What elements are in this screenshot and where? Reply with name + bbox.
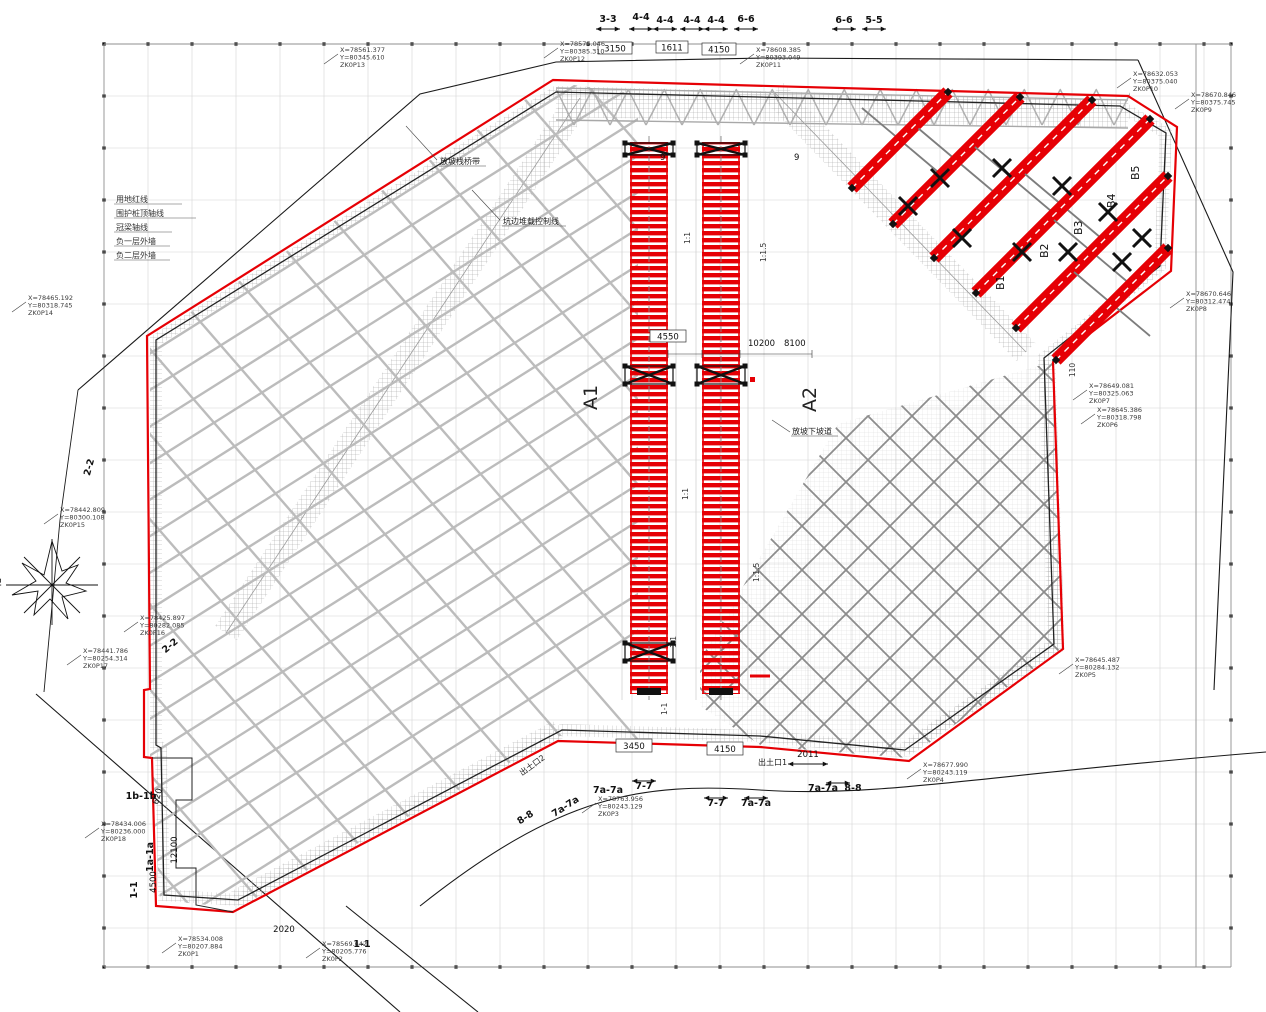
area-label-b1: B1 <box>994 275 1007 290</box>
coordinate-callout: X=78763.956Y=80243.129ZK0P3 <box>582 795 643 818</box>
section-marker: 4-4 <box>707 15 725 26</box>
callout-text: ZK0P5 <box>1075 671 1096 679</box>
legend-line: 冠梁轴线 <box>116 222 148 232</box>
legend-line: 围护桩顶轴线 <box>116 208 164 218</box>
callout-text: ZK0P14 <box>28 309 53 317</box>
callout-text: ZK0P11 <box>756 61 781 69</box>
site-boundary-left <box>44 390 78 692</box>
coordinate-callout: X=78649.081Y=80325.063ZK0P7 <box>1073 382 1134 405</box>
callout-text: ZK0P1 <box>178 950 199 958</box>
compass-icon <box>6 539 98 625</box>
callout-text: ZK0P6 <box>1097 421 1118 429</box>
area-label-b5: B5 <box>1129 165 1142 180</box>
site-boundary-right <box>1138 60 1233 690</box>
dim-4150: 4150 <box>708 46 730 56</box>
section-marker: 4-4 <box>656 15 674 26</box>
coordinate-callout: X=78569.642Y=80205.776ZK0P2 <box>306 940 367 963</box>
callout-text: ZK0P15 <box>60 521 85 529</box>
callout-text: ZK0P10 <box>1133 85 1158 93</box>
band-edge <box>226 98 580 633</box>
dim-4550: 4550 <box>657 333 679 343</box>
section-marker: 7-7 <box>635 781 652 792</box>
coordinate-callout: X=78441.786Y=80254.314ZK0P17 <box>67 647 128 670</box>
callout-text: ZK0P9 <box>1191 106 1212 114</box>
dim-12100: 12100 <box>170 836 180 863</box>
area-label-a1: A1 <box>580 385 602 410</box>
section-marker: 1-1 <box>129 881 140 898</box>
area-label-a2: A2 <box>799 387 821 412</box>
slope-label: 1:1.5 <box>752 563 761 582</box>
section-marker: 6-6 <box>737 14 755 25</box>
section-marker: 7-7 <box>707 798 724 809</box>
section-marker: 6-6 <box>835 15 853 26</box>
grid-bubble: 9 <box>794 153 799 163</box>
callout-text: ZK0P4 <box>923 776 944 784</box>
section-marker: 2-2 <box>82 458 97 477</box>
north-label: 北 <box>0 578 3 589</box>
coordinate-callout: X=78434.006Y=80236.000ZK0P18 <box>85 820 146 843</box>
callout-text: ZK0P16 <box>140 629 165 637</box>
drawing-sheet: B1 B2 B3 B4 B5 4550 10200 <box>0 0 1266 1012</box>
area-label-b4: B4 <box>1105 193 1118 208</box>
slope-label: 1:1 <box>681 488 690 500</box>
legend-line: 用地红线 <box>116 194 148 204</box>
slope-label: 1-1 <box>660 703 669 715</box>
coordinate-callout: X=78670.846Y=80375.745ZK0P9 <box>1175 91 1236 114</box>
bridge-note: 放坡栈桥带 <box>440 156 480 166</box>
dim-10200: 10200 <box>748 339 775 349</box>
site-plan-drawing: B1 B2 B3 B4 B5 4550 10200 <box>0 0 1266 1012</box>
ramp-note: 放坡下坡道 <box>772 420 838 436</box>
dim-3150: 3150 <box>604 45 626 55</box>
slope-label: 1:1 <box>669 636 678 648</box>
coordinate-callout: X=78608.385Y=80393.049ZK0P11 <box>740 46 801 69</box>
callout-text: ZK0P2 <box>322 955 343 963</box>
section-marker: 2-2 <box>160 636 180 655</box>
section-marker: 5-5 <box>865 15 882 26</box>
section-marker: 8-8 <box>844 783 862 794</box>
red-marker-square <box>750 377 755 382</box>
legend-line: 负二层外墙 <box>116 250 156 260</box>
callout-text: ZK0P12 <box>560 55 585 63</box>
callout-text: ZK0P3 <box>598 810 619 818</box>
dim-4150: 4150 <box>714 745 736 755</box>
dim-1611: 1611 <box>661 44 683 54</box>
dim-2020: 2020 <box>273 925 295 935</box>
coordinate-callout: X=78442.809Y=80300.108ZK0P15 <box>44 506 105 529</box>
coordinate-callout: X=78670.646Y=80312.474ZK0P8 <box>1170 290 1231 313</box>
section-marker: 3-3 <box>599 14 616 25</box>
coordinate-callout: X=78632.053Y=80375.040ZK0P10 <box>1117 70 1178 93</box>
section-marker: 8-8 <box>515 808 536 827</box>
slope-label: 1:1 <box>683 232 692 244</box>
dim-3450: 3450 <box>623 742 645 752</box>
area-label-b2: B2 <box>1038 243 1051 258</box>
callout-text: ZK0P8 <box>1186 305 1207 313</box>
coordinate-callout: X=78645.386Y=80318.798ZK0P6 <box>1081 406 1142 429</box>
dim-110: 110 <box>1068 363 1077 378</box>
section-marker: 7a-7a <box>741 798 771 809</box>
legend-line: 负一层外墙 <box>116 236 156 246</box>
dim-2011: 2011 <box>797 750 819 760</box>
section-marker: 7a-7a <box>550 794 581 820</box>
callout-text: ZK0P13 <box>340 61 365 69</box>
callout-text: ZK0P7 <box>1089 397 1110 405</box>
north-compass: 北 <box>0 539 98 625</box>
section-marker: 1b-1b <box>126 791 157 802</box>
callout-text: ZK0P17 <box>83 662 108 670</box>
grid-bubble: 9 <box>660 153 665 163</box>
section-marker: 4-4 <box>632 12 650 23</box>
dim-8100: 8100 <box>784 339 806 349</box>
coordinate-callout: X=78575.046Y=80385.310ZK0P12 <box>544 40 605 63</box>
dim-4500: 4500 <box>149 871 159 893</box>
opening-label-1: 出土口1 <box>758 757 787 767</box>
slope-label: 1:1.5 <box>759 243 768 262</box>
coordinate-callout: X=78677.990Y=80243.119ZK0P4 <box>907 761 968 784</box>
surcharge-note: 坑边堆载控制线 <box>503 216 559 226</box>
a-strut-columns <box>622 136 770 700</box>
coordinate-callout: X=78465.192Y=80318.745ZK0P14 <box>12 294 73 317</box>
coordinate-callout: X=78645.487Y=80284.132ZK0P5 <box>1059 656 1120 679</box>
coordinate-callout: X=78534.008Y=80207.884ZK0P1 <box>162 935 223 958</box>
area-label-b3: B3 <box>1072 220 1085 235</box>
ramp-label: 放坡下坡道 <box>792 426 832 436</box>
legend-notes: 用地红线 围护桩顶轴线 冠梁轴线 负一层外墙 负二层外墙 <box>114 194 196 260</box>
callout-text: ZK0P18 <box>101 835 126 843</box>
section-marker: 4-4 <box>683 15 701 26</box>
section-marker: 7a-7a <box>808 783 838 794</box>
site-road-line <box>420 752 1266 906</box>
coordinate-callout: X=78561.377Y=80345.610ZK0P13 <box>324 46 385 69</box>
section-marker: 1a-1a <box>145 842 156 872</box>
